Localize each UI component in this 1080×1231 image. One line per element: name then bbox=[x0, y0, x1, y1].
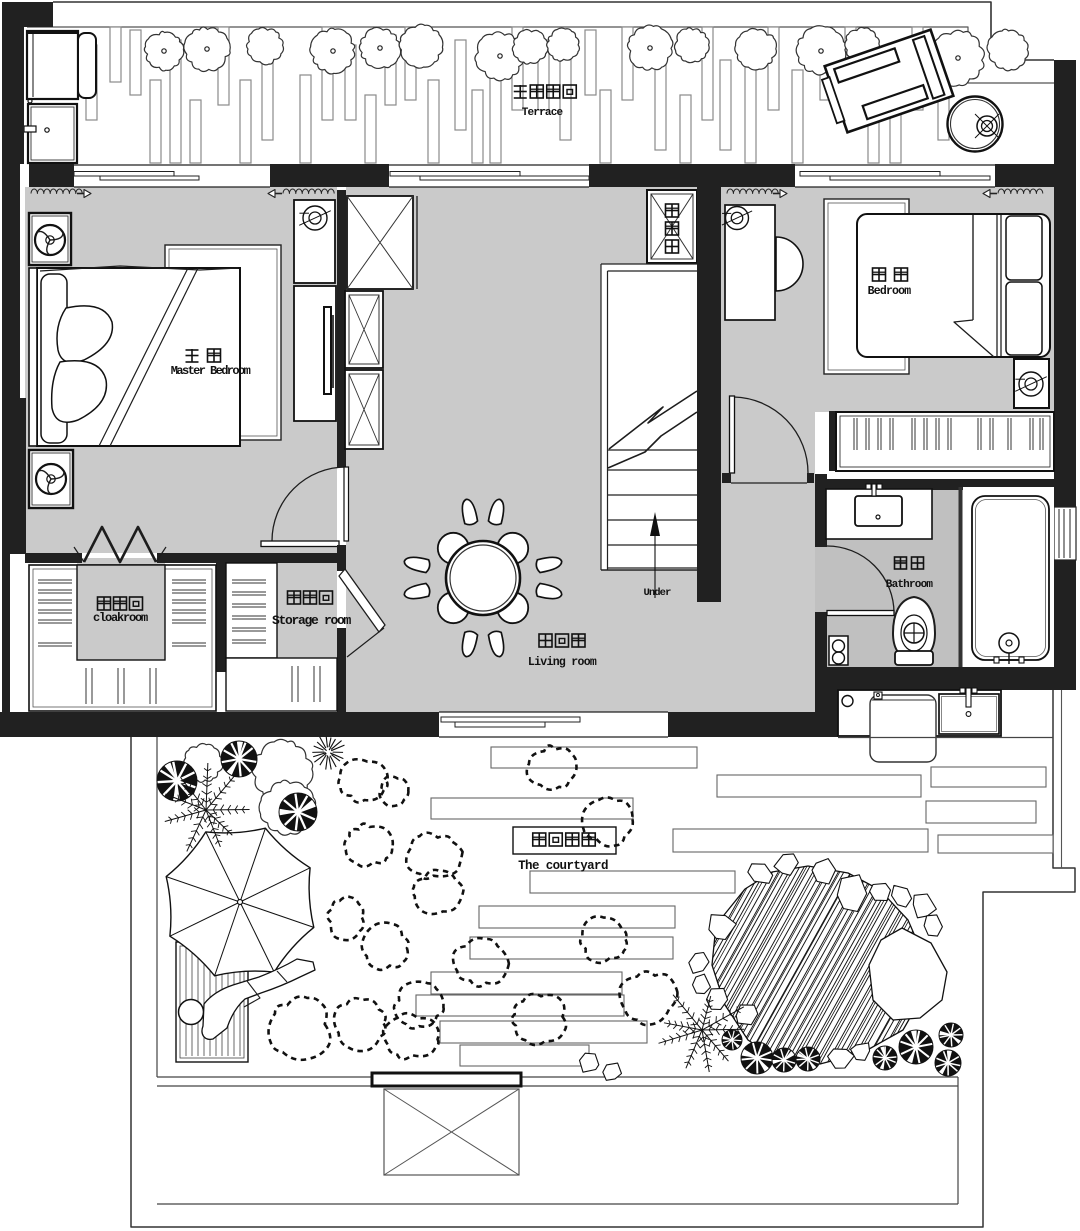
svg-text:Living room: Living room bbox=[528, 656, 597, 669]
svg-text:Storage room: Storage room bbox=[272, 613, 352, 628]
svg-text:Bedroom: Bedroom bbox=[868, 285, 912, 298]
svg-text:Bathroom: Bathroom bbox=[886, 579, 934, 591]
svg-text:The courtyard: The courtyard bbox=[518, 859, 608, 873]
svg-text:cloakroom: cloakroom bbox=[93, 611, 148, 625]
svg-text:Under: Under bbox=[643, 587, 671, 599]
svg-text:Master Bedroom: Master Bedroom bbox=[171, 364, 251, 378]
svg-text:Terrace: Terrace bbox=[522, 107, 564, 119]
